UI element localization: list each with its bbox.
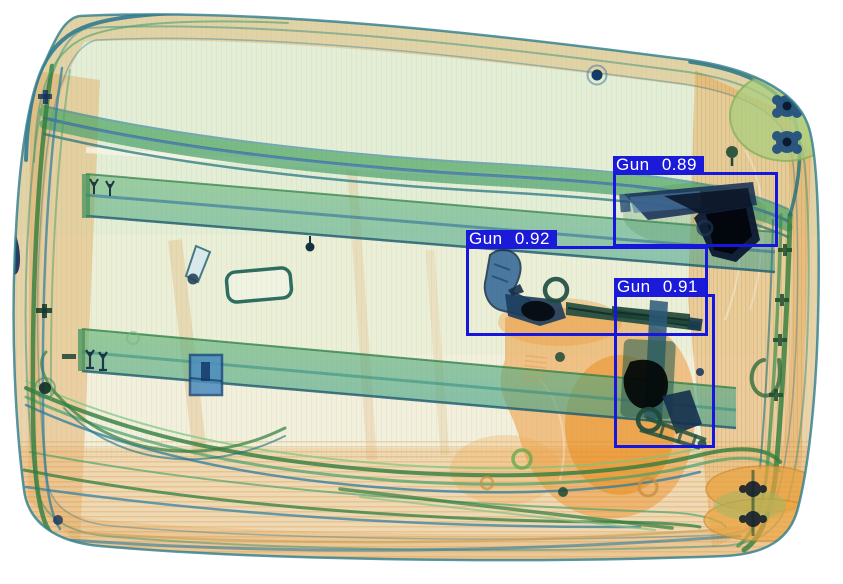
- bottom-right-wheels: [704, 466, 824, 541]
- detection-label-gun-1: Gun 0.89: [613, 156, 704, 175]
- detection-box-gun-3: Gun 0.91: [614, 294, 715, 448]
- xray-baggage-image: [0, 0, 843, 584]
- small-blue-box-item: [190, 355, 222, 395]
- detection-label-gun-2: Gun 0.92: [466, 230, 557, 249]
- detection-box-gun-1: Gun 0.89: [613, 172, 778, 247]
- xray-scan-view: Gun 0.89 Gun 0.92 Gun 0.91: [0, 0, 843, 584]
- detection-label-gun-3: Gun 0.91: [614, 278, 705, 297]
